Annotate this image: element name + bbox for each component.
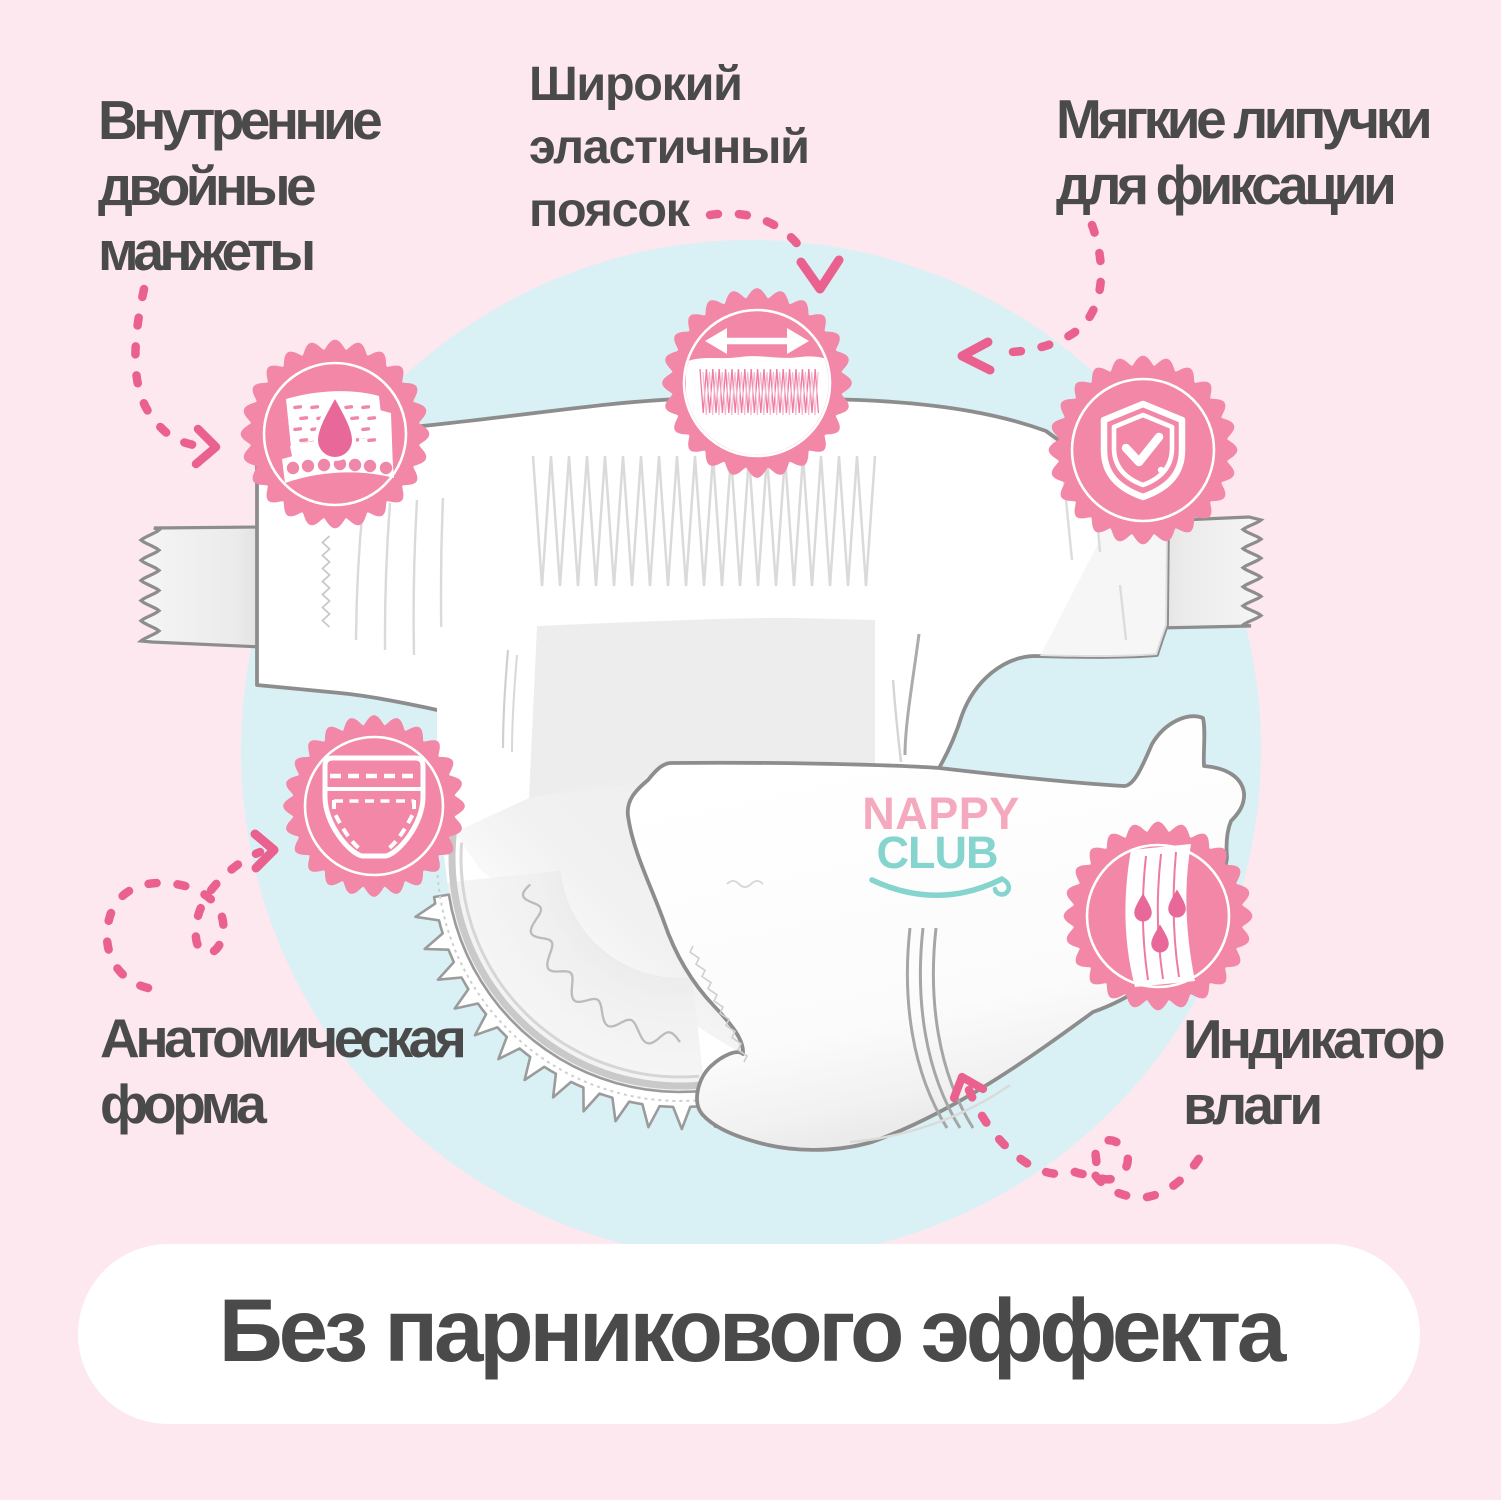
svg-text:CLUB: CLUB <box>877 827 998 878</box>
